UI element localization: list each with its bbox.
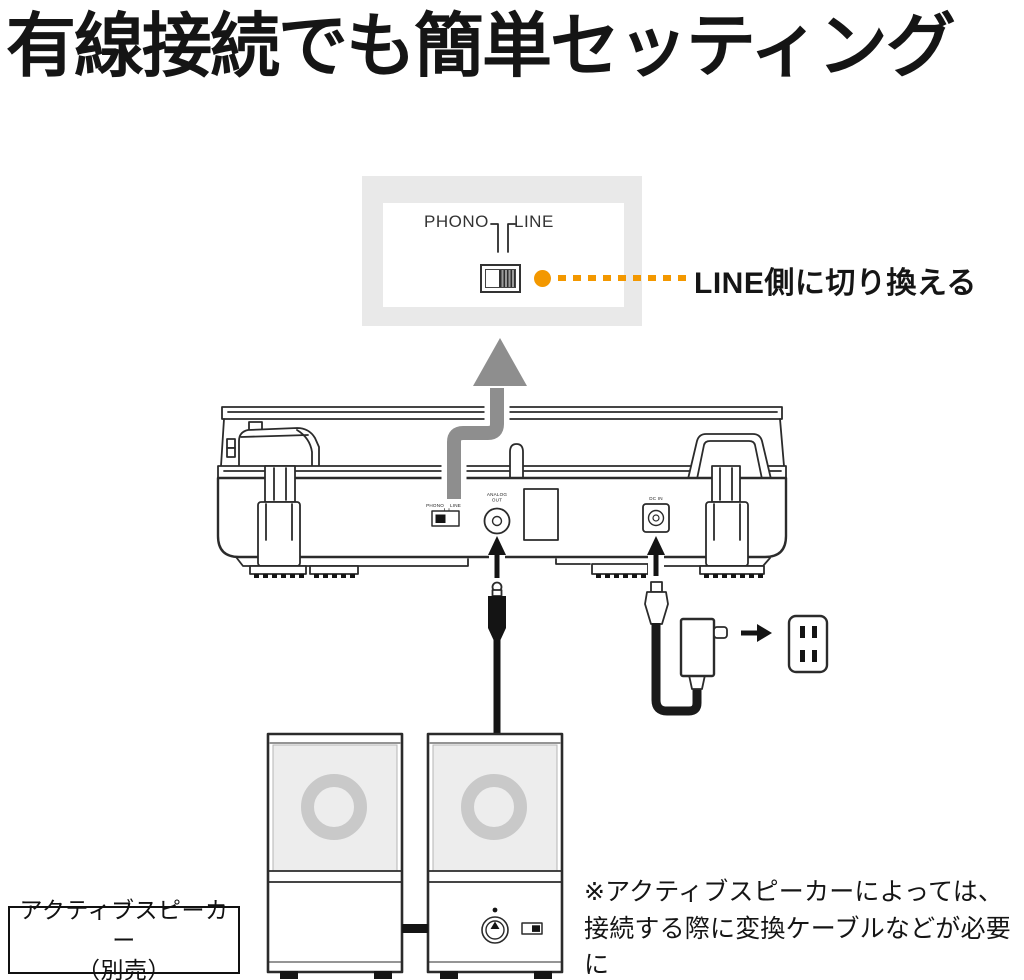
tiny-phono-label: PHONO [426, 503, 444, 508]
page: 有線接続でも簡単セッティング PHONO LINE LINE側に切り換える [0, 0, 1024, 980]
wall-outlet [789, 616, 827, 672]
footnote-line1: ※アクティブスピーカーによっては、 [584, 874, 1024, 911]
callout-bracket-lines [491, 224, 515, 252]
speaker-label-box: アクティブスピーカー （別売） [8, 906, 240, 974]
power-arrow [741, 624, 772, 642]
analog-out-jack [485, 509, 510, 534]
speaker-label-line1: アクティブスピーカー [10, 895, 238, 955]
left-hinge [258, 466, 300, 566]
adapter-plug-prong [714, 627, 727, 638]
tiny-line-label: LINE [450, 503, 461, 508]
speaker-power-switch [522, 923, 542, 934]
right-speaker [428, 734, 562, 979]
dc-in-label: DC IN [649, 496, 663, 501]
dc-plug [645, 582, 668, 624]
speaker-grille [273, 745, 397, 871]
analog-out-label-1: ANALOG [487, 492, 508, 497]
terminal-cover [524, 489, 558, 540]
footnote: ※アクティブスピーカーによっては、 接続する際に変換ケーブルなどが必要に なる場… [584, 874, 1024, 980]
analog-out-label-2: OUT [492, 498, 502, 503]
speaker-link-cable [402, 924, 428, 933]
audio-cable [494, 640, 501, 738]
tonearm-assembly [227, 422, 319, 468]
speaker-grille [433, 745, 557, 871]
diagram-canvas: PHONO LINE ANALOG OUT DC IN [0, 0, 1024, 980]
cable-clip [510, 444, 523, 478]
ac-adapter [681, 619, 727, 676]
dc-in-jack [643, 504, 669, 532]
speaker-label-line2: （別売） [10, 955, 238, 980]
left-speaker [268, 734, 402, 979]
footnote-line2: 接続する際に変換ケーブルなどが必要に [584, 911, 1024, 980]
audio-plug [488, 583, 506, 642]
